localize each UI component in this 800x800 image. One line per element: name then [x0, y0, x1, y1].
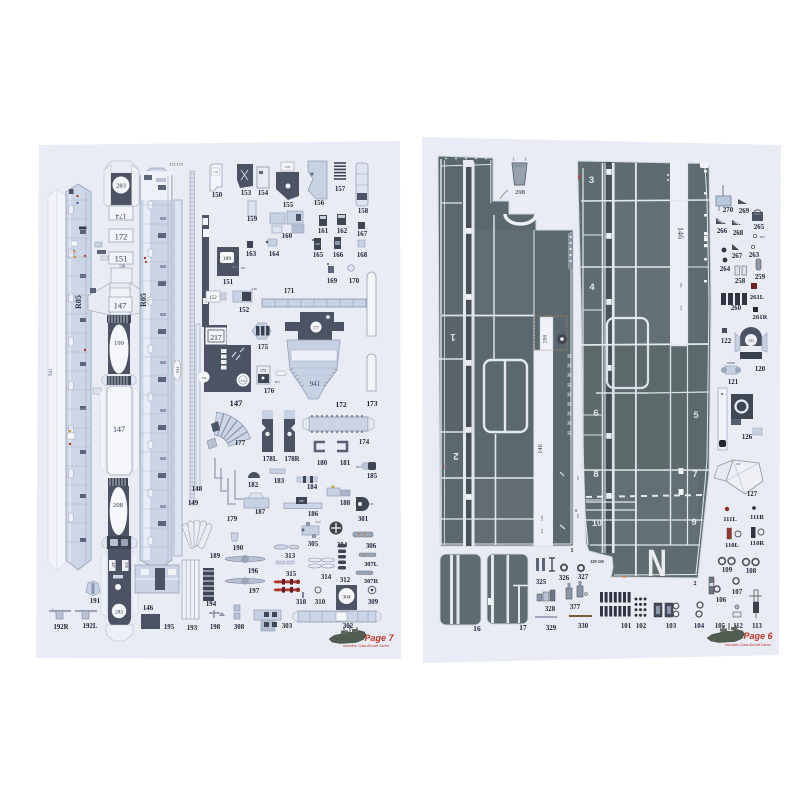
svg-text:298: 298 — [543, 335, 549, 344]
svg-text:111L: 111L — [723, 516, 737, 523]
svg-text:4: 4 — [589, 282, 595, 293]
svg-text:329: 329 — [546, 625, 557, 632]
svg-text:170: 170 — [349, 278, 360, 285]
svg-text:941: 941 — [310, 380, 321, 388]
svg-text:260: 260 — [731, 305, 742, 312]
svg-text:199: 199 — [114, 340, 124, 347]
svg-text:149: 149 — [188, 500, 199, 507]
svg-text:100: 100 — [576, 476, 580, 481]
svg-text:261R: 261R — [753, 314, 768, 321]
svg-text:3: 3 — [589, 175, 594, 186]
svg-text:107: 107 — [732, 589, 743, 596]
svg-text:198: 198 — [210, 624, 221, 631]
svg-text:158: 158 — [284, 165, 290, 169]
svg-text:329-330: 329-330 — [590, 559, 603, 564]
svg-text:110R: 110R — [750, 540, 765, 547]
svg-text:188: 188 — [340, 500, 351, 507]
svg-text:187: 187 — [255, 509, 266, 516]
svg-text:283: 283 — [116, 183, 126, 190]
svg-text:189: 189 — [210, 553, 221, 560]
svg-text:147: 147 — [230, 398, 244, 408]
svg-text:371: 371 — [679, 306, 683, 311]
svg-text:941: 941 — [48, 368, 54, 377]
svg-text:179: 179 — [227, 516, 238, 523]
svg-text:264: 264 — [720, 266, 731, 273]
svg-text:103: 103 — [666, 623, 677, 630]
svg-text:330: 330 — [578, 623, 589, 630]
svg-text:175: 175 — [260, 368, 266, 373]
svg-text:Page 7: Page 7 — [364, 633, 394, 643]
svg-text:8: 8 — [593, 469, 598, 480]
svg-text:127: 127 — [747, 491, 758, 498]
svg-text:283: 283 — [115, 610, 123, 616]
svg-text:180: 180 — [317, 460, 328, 467]
svg-text:333: 333 — [241, 379, 246, 383]
svg-text:160: 160 — [282, 233, 293, 240]
svg-text:Я: Я — [567, 431, 571, 437]
svg-text:164: 164 — [269, 251, 280, 258]
svg-text:248: 248 — [251, 287, 257, 291]
svg-text:146: 146 — [676, 227, 685, 239]
svg-text:377: 377 — [570, 604, 581, 611]
svg-text:189: 189 — [223, 256, 232, 262]
svg-text:196: 196 — [248, 568, 259, 575]
svg-text:258: 258 — [735, 278, 746, 285]
svg-text:N: N — [647, 542, 667, 584]
svg-text:182: 182 — [248, 482, 259, 489]
svg-text:318: 318 — [296, 599, 307, 606]
svg-text:178L: 178L — [263, 456, 278, 463]
svg-text:131: 131 — [748, 338, 754, 343]
svg-text:304: 304 — [342, 595, 351, 601]
svg-text:193: 193 — [187, 625, 198, 632]
svg-text:343: 343 — [202, 376, 207, 380]
svg-text:261L: 261L — [750, 294, 765, 301]
svg-text:163: 163 — [246, 251, 257, 258]
svg-text:161: 161 — [318, 228, 329, 235]
svg-text:126: 126 — [736, 462, 741, 466]
svg-text:162: 162 — [337, 228, 348, 235]
svg-text:177: 177 — [313, 325, 319, 330]
svg-text:154: 154 — [258, 190, 269, 197]
svg-text:Я: Я — [567, 421, 571, 427]
svg-text:Я: Я — [567, 392, 571, 398]
svg-text:172: 172 — [335, 400, 346, 409]
svg-text:301: 301 — [358, 516, 369, 523]
svg-text:262: 262 — [759, 235, 765, 239]
svg-text:306: 306 — [366, 543, 377, 550]
svg-text:259: 259 — [755, 274, 766, 281]
svg-text:191: 191 — [90, 598, 101, 605]
svg-text:298: 298 — [515, 189, 525, 196]
svg-text:217: 217 — [210, 333, 222, 342]
svg-text:Я: Я — [567, 373, 571, 379]
svg-text:188: 188 — [299, 499, 304, 503]
svg-text:108: 108 — [746, 568, 757, 575]
svg-text:308: 308 — [234, 624, 245, 631]
svg-text:191: 191 — [240, 266, 246, 270]
svg-text:Page 6: Page 6 — [743, 631, 773, 641]
svg-text:184: 184 — [307, 484, 318, 491]
svg-text:328: 328 — [545, 606, 556, 613]
svg-text:152: 152 — [209, 296, 217, 301]
svg-text:268: 268 — [733, 230, 744, 237]
svg-text:158: 158 — [358, 208, 369, 215]
svg-text:176: 176 — [264, 388, 275, 395]
svg-text:185: 185 — [367, 473, 378, 480]
svg-text:158: 158 — [213, 170, 218, 174]
svg-text:R05: R05 — [139, 293, 148, 307]
svg-text:165: 165 — [313, 252, 324, 259]
svg-text:113: 113 — [752, 623, 762, 630]
svg-text:Я: Я — [567, 402, 571, 408]
svg-text:167: 167 — [357, 231, 368, 238]
svg-text:157: 157 — [335, 186, 346, 193]
svg-text:263: 263 — [749, 252, 760, 259]
svg-text:195: 195 — [164, 624, 175, 631]
svg-text:305: 305 — [308, 541, 319, 548]
svg-text:327: 327 — [578, 574, 589, 581]
svg-text:312: 312 — [340, 577, 351, 584]
svg-text:2: 2 — [453, 450, 459, 461]
svg-text:174: 174 — [115, 212, 126, 220]
svg-text:309: 309 — [368, 599, 379, 606]
svg-text:2: 2 — [694, 581, 697, 587]
svg-text:266: 266 — [717, 228, 728, 235]
svg-text:122: 122 — [721, 338, 732, 345]
svg-text:192R: 192R — [53, 624, 68, 631]
svg-text:174: 174 — [359, 439, 370, 446]
svg-text:R05: R05 — [74, 295, 83, 309]
svg-text:194: 194 — [206, 601, 217, 608]
svg-text:173: 173 — [366, 399, 377, 408]
svg-text:310: 310 — [315, 599, 326, 606]
svg-text:172: 172 — [115, 232, 128, 242]
svg-text:315: 315 — [286, 571, 297, 578]
svg-text:16: 16 — [473, 624, 481, 633]
svg-text:Invincible Class Aircraft Carr: Invincible Class Aircraft Carrier — [343, 644, 390, 648]
svg-text:121: 121 — [728, 379, 739, 386]
svg-text:168: 168 — [357, 252, 368, 259]
svg-text:312: 312 — [315, 520, 321, 524]
svg-text:Я: Я — [567, 364, 571, 370]
svg-text:1: 1 — [571, 548, 574, 554]
svg-text:313: 313 — [285, 553, 296, 560]
svg-text:239: 239 — [124, 562, 128, 568]
svg-text:363: 363 — [679, 283, 683, 288]
svg-text:146: 146 — [537, 443, 544, 454]
svg-text:177: 177 — [235, 440, 246, 447]
svg-text:110L: 110L — [725, 542, 740, 549]
svg-text:151: 151 — [223, 279, 234, 286]
svg-text:302: 302 — [343, 623, 354, 630]
svg-text:303: 303 — [282, 623, 293, 630]
svg-text:363: 363 — [274, 380, 280, 384]
svg-text:Invincible Class Aircraft Carr: Invincible Class Aircraft Carrier — [725, 643, 772, 647]
svg-text:181: 181 — [340, 460, 351, 467]
svg-text:153: 153 — [241, 190, 252, 197]
svg-text:155: 155 — [283, 202, 294, 209]
svg-text:447: 447 — [111, 562, 115, 568]
svg-text:314: 314 — [321, 574, 332, 581]
svg-text:178R: 178R — [284, 456, 299, 463]
svg-text:147: 147 — [113, 425, 125, 434]
svg-text:307L: 307L — [364, 561, 378, 568]
svg-text:146: 146 — [143, 605, 154, 612]
svg-text:111R: 111R — [750, 514, 764, 521]
svg-text:267: 267 — [732, 253, 743, 260]
svg-text:156: 156 — [314, 200, 325, 207]
svg-text:102: 102 — [636, 623, 647, 630]
svg-text:183: 183 — [274, 478, 285, 485]
svg-text:345: 345 — [368, 502, 374, 506]
svg-text:270: 270 — [723, 207, 734, 214]
svg-text:171-173: 171-173 — [169, 162, 182, 167]
svg-text:147: 147 — [114, 301, 127, 311]
svg-text:17: 17 — [519, 623, 527, 632]
svg-text:104: 104 — [694, 623, 705, 630]
svg-text:10: 10 — [592, 518, 602, 528]
svg-text:265: 265 — [754, 224, 765, 231]
svg-text:120: 120 — [755, 366, 766, 373]
svg-text:363: 363 — [540, 515, 544, 521]
svg-text:208: 208 — [113, 502, 123, 509]
svg-text:152: 152 — [239, 307, 250, 314]
svg-text:Я: Я — [567, 412, 571, 418]
svg-text:150: 150 — [212, 192, 223, 199]
svg-text:169: 169 — [327, 278, 338, 285]
svg-text:325: 325 — [536, 579, 547, 586]
svg-text:307R: 307R — [364, 578, 379, 585]
svg-text:Я: Я — [567, 383, 571, 389]
svg-text:166: 166 — [333, 252, 344, 259]
svg-text:159: 159 — [247, 216, 258, 223]
svg-text:184: 184 — [355, 465, 361, 469]
svg-text:109: 109 — [722, 567, 733, 574]
svg-text:269: 269 — [739, 208, 750, 215]
svg-text:941: 941 — [175, 367, 180, 374]
svg-text:197: 197 — [249, 588, 260, 595]
svg-text:192L: 192L — [83, 623, 98, 630]
svg-text:200: 200 — [576, 514, 580, 519]
svg-text:151: 151 — [115, 254, 128, 264]
svg-text:326: 326 — [559, 575, 570, 582]
svg-text:190: 190 — [233, 545, 244, 552]
svg-text:Я: Я — [567, 354, 571, 360]
svg-text:126: 126 — [742, 434, 753, 441]
svg-text:175: 175 — [258, 344, 269, 351]
svg-text:371: 371 — [540, 528, 544, 534]
svg-text:106: 106 — [716, 597, 727, 604]
svg-text:171: 171 — [284, 288, 295, 295]
svg-text:186: 186 — [308, 511, 319, 518]
svg-text:101: 101 — [621, 623, 632, 630]
svg-text:148: 148 — [192, 486, 203, 493]
